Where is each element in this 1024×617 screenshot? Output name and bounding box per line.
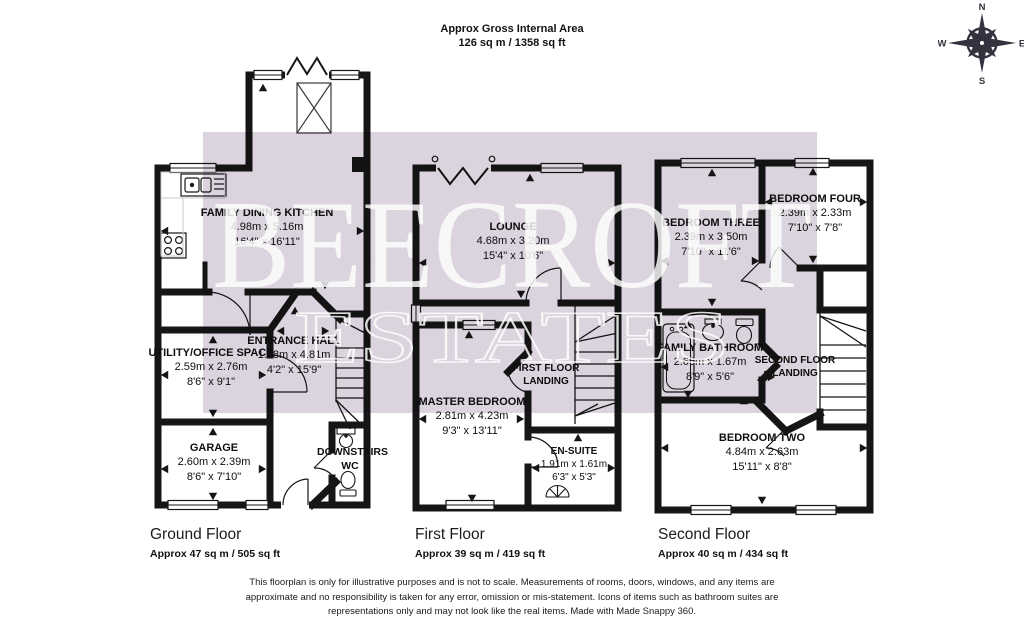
disclaimer-text: This floorplan is only for illustrative …	[234, 576, 790, 617]
room-name: EN-SUITE	[541, 445, 607, 458]
room-name: DOWNSTAIRS WC	[317, 446, 383, 473]
room-label-garage: GARAGE 2.60m x 2.39m 8'6" x 7'10"	[178, 441, 251, 484]
floor-name: Ground Floor	[150, 526, 280, 544]
floor-area: Approx 40 sq m / 434 sq ft	[658, 548, 788, 560]
room-dim-imperial: 6'3" x 5'3"	[541, 471, 607, 484]
gross-internal-area-title: Approx Gross Internal Area 126 sq m / 13…	[440, 23, 583, 51]
floor-area: Approx 39 sq m / 419 sq ft	[415, 548, 545, 560]
room-dim-imperial: 8'6" x 7'10"	[178, 470, 251, 484]
floorplan-canvas: FAMILY DINING KITCHEN 4.98m x 5.16m 16'4…	[0, 0, 1024, 617]
watermark-tint	[203, 132, 817, 413]
floor-name: Second Floor	[658, 526, 788, 544]
room-name: GARAGE	[178, 441, 251, 455]
compass-south-label: S	[979, 76, 985, 87]
title-line2: 126 sq m / 1358 sq ft	[440, 37, 583, 51]
compass-north-label: N	[979, 2, 986, 13]
room-label-bedroom-two: BEDROOM TWO 4.84m x 2.63m 15'11" x 8'8"	[719, 431, 805, 474]
first-floor-caption: First Floor Approx 39 sq m / 419 sq ft	[415, 526, 545, 560]
room-label-downstairs-wc: DOWNSTAIRS WC	[317, 446, 383, 473]
floor-name: First Floor	[415, 526, 545, 544]
room-dim-metric: 1.91m x 1.61m	[541, 458, 607, 471]
ground-floor-caption: Ground Floor Approx 47 sq m / 505 sq ft	[150, 526, 280, 560]
skylight-icon	[297, 83, 331, 133]
second-floor-caption: Second Floor Approx 40 sq m / 434 sq ft	[658, 526, 788, 560]
compass-rose-icon: N E S W	[938, 2, 1024, 88]
title-line1: Approx Gross Internal Area	[440, 23, 583, 37]
room-dim-metric: 2.60m x 2.39m	[178, 455, 251, 469]
compass-east-label: E	[1019, 39, 1024, 50]
room-dim-imperial: 15'11" x 8'8"	[719, 460, 805, 474]
room-label-en-suite: EN-SUITE 1.91m x 1.61m 6'3" x 5'3"	[541, 445, 607, 484]
floor-area: Approx 47 sq m / 505 sq ft	[150, 548, 280, 560]
compass-west-label: W	[938, 39, 947, 50]
room-dim-metric: 4.84m x 2.63m	[719, 445, 805, 459]
room-dim-imperial: 9'3" x 13'11"	[419, 424, 526, 438]
room-name: BEDROOM TWO	[719, 431, 805, 445]
